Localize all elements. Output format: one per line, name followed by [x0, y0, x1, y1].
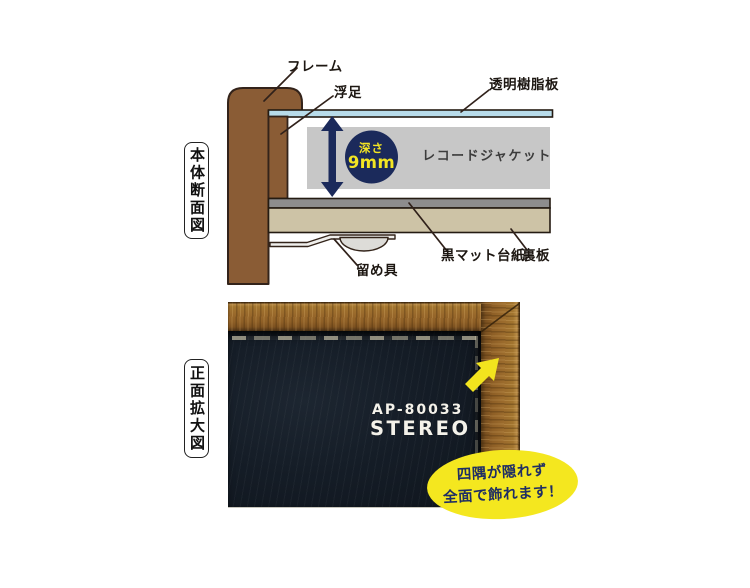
back-board-shape — [269, 208, 551, 233]
label-record-jacket: レコードジャケット — [410, 150, 564, 163]
section-label-cross-section: 本体断面図 — [184, 142, 209, 239]
record-frame-product-diagram: フレーム 浮足 透明樹脂板 レコードジャケット 黒マット台紙 裏板 留め具 深さ… — [0, 0, 750, 588]
float-spacer-shape — [269, 117, 288, 199]
fastener-dome-shape — [340, 238, 388, 252]
depth-badge-text: 深さ 9mm — [345, 137, 398, 177]
corner-arrow-icon — [465, 358, 499, 392]
label-black-mat: 黒マット台紙 — [441, 250, 525, 264]
label-float-gap: 浮足 — [334, 87, 362, 101]
section-label-front-view: 正面拡大図 — [184, 359, 209, 458]
miter-joint-seam — [481, 303, 520, 332]
section-label-front-view-text: 正面拡大図 — [189, 365, 204, 453]
label-fastener: 留め具 — [356, 265, 398, 279]
leader-resin-plate — [461, 90, 489, 112]
label-frame: フレーム — [287, 61, 343, 75]
label-resin-plate: 透明樹脂板 — [489, 79, 559, 93]
label-back-board: 裏板 — [522, 250, 550, 264]
depth-value: 9mm — [348, 154, 395, 171]
section-label-cross-section-text: 本体断面図 — [189, 147, 204, 235]
